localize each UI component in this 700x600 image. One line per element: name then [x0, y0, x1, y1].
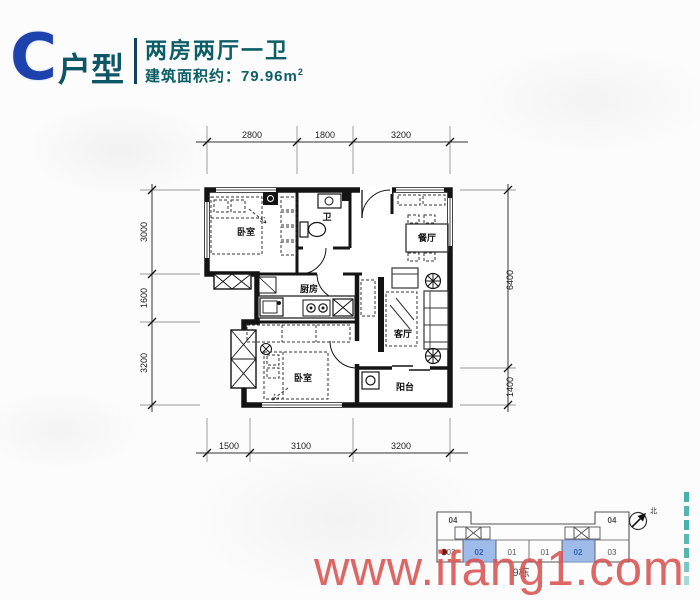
dim-label: 3200 — [139, 353, 149, 373]
furniture-sofa — [424, 291, 448, 349]
wardrobe-bay-left — [231, 330, 256, 388]
dimensions-left — [140, 184, 200, 412]
furniture-armchair — [392, 268, 418, 288]
dim-label: 1600 — [139, 288, 149, 308]
dim-label: 3000 — [139, 222, 149, 242]
site-watermark: www.ifang1.com — [314, 541, 685, 597]
room-label-kitchen: 厨房 — [300, 283, 318, 294]
dim-label: 1400 — [505, 377, 515, 397]
bay-window-left — [214, 274, 251, 289]
plant-bottom — [425, 348, 441, 364]
dim-label: 1800 — [315, 130, 335, 140]
room-label-dining: 餐厅 — [417, 232, 436, 243]
room-label-balcony: 阳台 — [396, 381, 414, 392]
floorplan-canvas: 2800 1800 3200 3000 1600 3200 6400 1400 — [0, 0, 700, 600]
window-bedroom2-bottom — [262, 402, 342, 409]
room-label-living: 客厅 — [393, 328, 412, 339]
dim-label: 3200 — [391, 441, 411, 451]
room-label-bedroom2: 卧室 — [294, 372, 312, 383]
keyplan-unit-04-right: 04 — [608, 516, 617, 525]
room-label-bath: 卫 — [322, 212, 331, 222]
dim-label: 6400 — [505, 270, 515, 290]
window-bedroom1-left — [204, 202, 211, 258]
room-label-bedroom1: 卧室 — [237, 226, 255, 237]
fixture-toilet — [300, 222, 326, 237]
dim-label: 2800 — [242, 130, 262, 140]
compass-north-label: 北 — [650, 507, 657, 515]
dim-label: 3100 — [291, 441, 311, 451]
compass-icon: 北 — [630, 507, 658, 530]
furniture-washer — [362, 372, 379, 389]
window-dining-top — [396, 187, 444, 194]
dim-label: 3200 — [391, 130, 411, 140]
dim-label: 1500 — [219, 441, 239, 451]
dimensions-bottom — [196, 418, 468, 462]
keyplan-unit-04-left: 04 — [449, 516, 458, 525]
furniture-dresser — [263, 192, 278, 205]
plant-top — [425, 273, 441, 289]
